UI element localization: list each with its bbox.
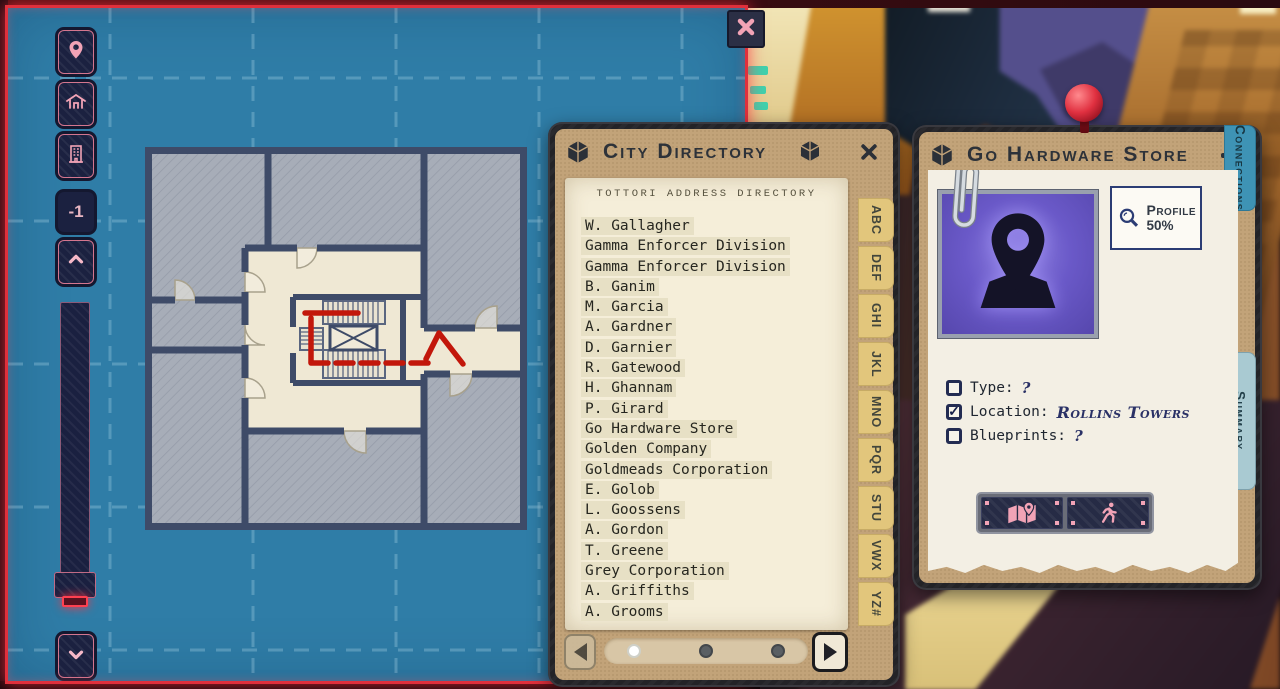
- arrow-right-icon: [824, 643, 837, 661]
- prev-page-button[interactable]: [564, 634, 596, 670]
- building-sign-mark: [754, 102, 768, 110]
- field-checkbox[interactable]: ✓: [946, 404, 962, 420]
- floor-scrollbar-current-marker: [62, 596, 88, 607]
- letter-tab[interactable]: STU: [858, 486, 894, 530]
- page-dot[interactable]: [699, 644, 713, 658]
- page-dot[interactable]: [771, 644, 785, 658]
- floor-level-indicator: -1: [58, 192, 94, 232]
- field-checkbox[interactable]: ✓: [946, 380, 962, 396]
- directory-entry[interactable]: D. Garnier: [581, 338, 790, 358]
- profile-field-row[interactable]: ✓ Type: ?: [946, 376, 1190, 400]
- directory-entries: W. GallagherGamma Enforcer DivisionGamma…: [581, 216, 790, 622]
- map-mode-house-button[interactable]: [58, 82, 94, 126]
- building-icon: [64, 142, 88, 171]
- directory-entry[interactable]: H. Ghannam: [581, 378, 790, 398]
- page-dot[interactable]: [627, 644, 641, 658]
- field-label: Type:: [970, 380, 1014, 396]
- directory-entry[interactable]: P. Girard: [581, 399, 790, 419]
- close-icon[interactable]: [859, 142, 879, 162]
- directory-entry[interactable]: W. Gallagher: [581, 216, 790, 236]
- directory-entry[interactable]: A. Grooms: [581, 602, 790, 622]
- floor-down-button[interactable]: [58, 634, 94, 678]
- directory-entry[interactable]: A. Griffiths: [581, 581, 790, 601]
- profile-fields: ✓ Type: ? ✓ Location: Rollins Towers ✓ B…: [946, 376, 1190, 448]
- map-mode-building-button[interactable]: [58, 134, 94, 178]
- next-page-button[interactable]: [812, 632, 848, 672]
- magnifier-icon: [1116, 204, 1142, 232]
- floor-scrollbar-track[interactable]: [60, 302, 90, 584]
- evidence-card: Profile 50% ✓ Type: ? ✓ Location: Rollin…: [928, 170, 1238, 575]
- action-buttons: [976, 492, 1154, 534]
- game-screen: -1 City Directory: [0, 0, 1280, 689]
- directory-entry[interactable]: Golden Company: [581, 439, 790, 459]
- letter-tabs: ABCDEFGHIJKLMNOPQRSTUVWXYZ#: [858, 198, 894, 630]
- directory-entry[interactable]: Go Hardware Store: [581, 419, 790, 439]
- hardware-store-window: Go Hardware Store SummaryConnections: [912, 125, 1262, 590]
- field-value: ?: [1022, 379, 1031, 397]
- letter-tab[interactable]: ABC: [858, 198, 894, 242]
- directory-entry[interactable]: R. Gatewood: [581, 358, 790, 378]
- profile-progress-box: Profile 50%: [1110, 186, 1202, 250]
- directory-entry[interactable]: Gamma Enforcer Division: [581, 257, 790, 277]
- show-on-map-button[interactable]: [981, 497, 1063, 529]
- cube-icon: [565, 139, 591, 165]
- directory-entry[interactable]: T. Greene: [581, 541, 790, 561]
- building-sign-mark: [748, 66, 768, 75]
- travel-to-button[interactable]: [1067, 497, 1149, 529]
- letter-tab[interactable]: JKL: [858, 342, 894, 386]
- chevron-down-icon: [65, 643, 87, 670]
- city-directory-window: City Directory TOTTORI ADDRESS DIRECTORY…: [548, 122, 900, 687]
- page-dots: [604, 638, 808, 664]
- map-mode-pin-button[interactable]: [58, 30, 94, 74]
- directory-entry[interactable]: E. Golob: [581, 480, 790, 500]
- floor-up-button[interactable]: [58, 240, 94, 284]
- letter-tab[interactable]: DEF: [858, 246, 894, 290]
- arrow-left-icon: [574, 643, 587, 661]
- directory-page: TOTTORI ADDRESS DIRECTORY W. GallagherGa…: [565, 178, 848, 630]
- field-value: ?: [1074, 427, 1083, 445]
- field-value: Rollins Towers: [1057, 403, 1190, 422]
- map-close-button[interactable]: [727, 10, 765, 48]
- directory-entry[interactable]: A. Gordon: [581, 520, 790, 540]
- building-sign-mark: [750, 86, 766, 94]
- directory-page-title: TOTTORI ADDRESS DIRECTORY: [565, 188, 848, 200]
- floor-scrollbar-handle[interactable]: [54, 572, 96, 598]
- red-pushpin-icon[interactable]: [1063, 84, 1107, 136]
- profile-field-row[interactable]: ✓ Location: Rollins Towers: [946, 400, 1190, 424]
- cube-icon[interactable]: [798, 139, 824, 165]
- city-directory-header[interactable]: City Directory: [555, 129, 893, 175]
- field-label: Location:: [970, 404, 1049, 420]
- field-checkbox[interactable]: ✓: [946, 428, 962, 444]
- x-icon: [734, 15, 758, 44]
- letter-tab[interactable]: MNO: [858, 390, 894, 434]
- field-label: Blueprints:: [970, 428, 1066, 444]
- floor-plan[interactable]: [145, 147, 527, 530]
- profile-label: Profile: [1146, 203, 1196, 218]
- check-icon: ✓: [948, 403, 960, 420]
- run-icon: [1095, 500, 1121, 526]
- directory-entry[interactable]: B. Ganim: [581, 277, 790, 297]
- chevron-up-icon: [65, 249, 87, 276]
- screen-top-edge: [0, 0, 1280, 8]
- profile-field-row[interactable]: ✓ Blueprints: ?: [946, 424, 1190, 448]
- directory-entry[interactable]: Grey Corporation: [581, 561, 790, 581]
- directory-entry[interactable]: Goldmeads Corporation: [581, 460, 790, 480]
- directory-entry[interactable]: L. Goossens: [581, 500, 790, 520]
- map-location-icon: [1006, 500, 1038, 526]
- directory-entry[interactable]: A. Gardner: [581, 317, 790, 337]
- screen-left-edge: [0, 0, 8, 689]
- letter-tab[interactable]: GHI: [858, 294, 894, 338]
- cube-icon: [929, 142, 955, 168]
- directory-entry[interactable]: M. Garcia: [581, 297, 790, 317]
- directory-pagination: [562, 632, 852, 674]
- city-directory-title: City Directory: [603, 140, 767, 164]
- hardware-store-title: Go Hardware Store: [967, 143, 1189, 167]
- letter-tab[interactable]: YZ#: [858, 582, 894, 626]
- directory-entry[interactable]: Gamma Enforcer Division: [581, 236, 790, 256]
- letter-tab[interactable]: VWX: [858, 534, 894, 578]
- location-pin-icon: [64, 38, 88, 67]
- letter-tab[interactable]: PQR: [858, 438, 894, 482]
- house-icon: [64, 90, 88, 119]
- profile-value: 50%: [1146, 218, 1196, 233]
